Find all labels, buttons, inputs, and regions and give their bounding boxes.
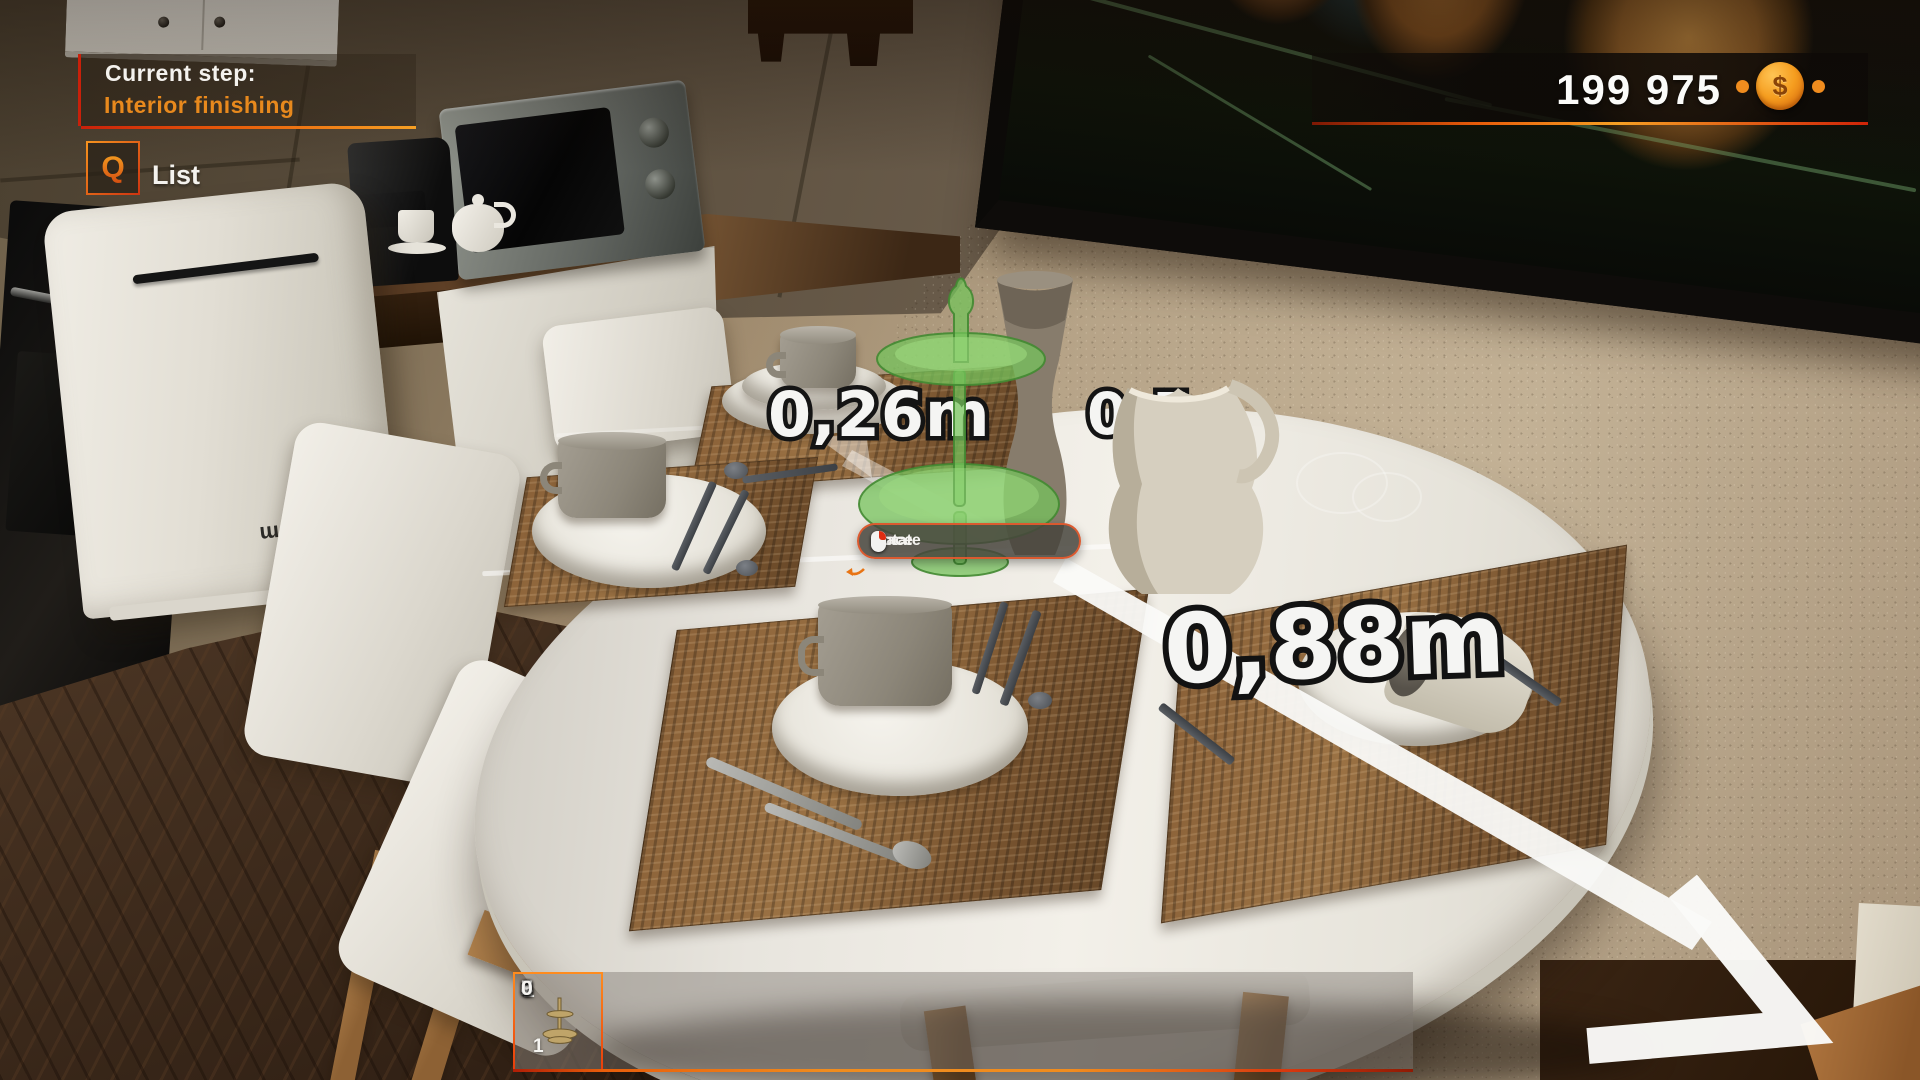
game-screen: ɯ: [0, 0, 1920, 1080]
q-key-label: Q: [101, 151, 124, 185]
hotbar: 1 1 2 3 4 5 6 7 8 9 0: [513, 972, 1413, 1072]
current-step-value: Interior finishing: [104, 92, 294, 119]
list-button-label[interactable]: List: [152, 160, 200, 191]
jug: [1080, 358, 1280, 603]
panel-accent-line: [1312, 122, 1868, 125]
dollar-coin-icon: $: [1756, 62, 1804, 110]
rotate-arrow-icon: [845, 567, 865, 577]
coin-side-dot: [1812, 80, 1825, 93]
mouse-right-click-icon: [871, 531, 886, 552]
current-step-label: Current step:: [105, 60, 256, 87]
coin-side-dot: [1736, 80, 1749, 93]
dollar-sign: $: [1772, 71, 1787, 102]
list-shortcut-key[interactable]: Q: [86, 141, 140, 195]
current-step-panel: Current step: Interior finishing: [78, 54, 416, 126]
slot-number: 0: [521, 977, 533, 1001]
money-amount: 199 975: [1556, 66, 1722, 114]
hotbar-accent-line: [513, 1069, 1413, 1072]
hotbar-slot-0[interactable]: 0: [513, 972, 603, 1072]
measurement-label: 0,88m: [1162, 582, 1508, 706]
place-rotate-tooltip: Place Rotate: [857, 523, 1081, 559]
panel-accent-line: [81, 126, 416, 129]
